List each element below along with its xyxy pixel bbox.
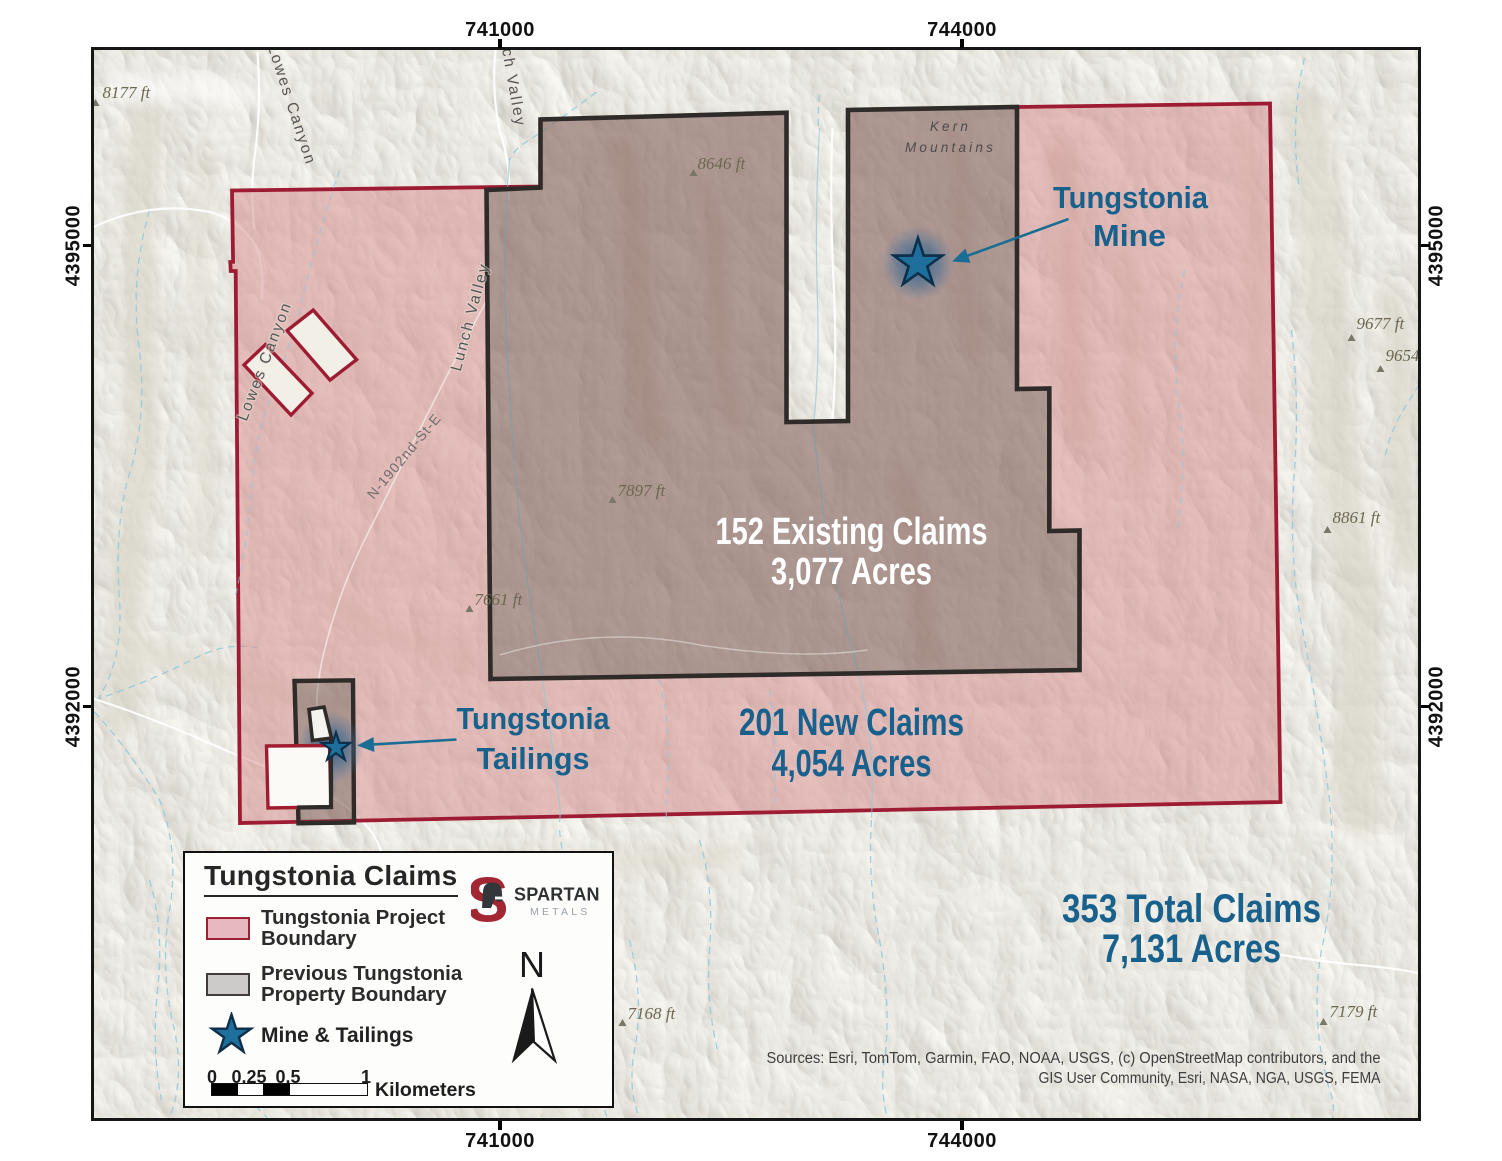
svg-text:Mine: Mine — [1093, 218, 1166, 253]
svg-text:9677 ft: 9677 ft — [1357, 314, 1406, 333]
svg-text:Tailings: Tailings — [477, 741, 590, 776]
svg-text:3,077 Acres: 3,077 Acres — [771, 551, 932, 593]
svg-text:GIS User Community, Esri, NASA: GIS User Community, Esri, NASA, NGA, USG… — [1039, 1070, 1382, 1087]
svg-text:Tungstonia: Tungstonia — [1053, 180, 1209, 215]
svg-text:Mountains: Mountains — [905, 140, 996, 155]
svg-text:7661 ft: 7661 ft — [475, 590, 524, 609]
svg-text:9654 f: 9654 f — [1386, 346, 1419, 365]
svg-text:7179 ft: 7179 ft — [1330, 1002, 1379, 1021]
svg-text:7,131 Acres: 7,131 Acres — [1102, 927, 1281, 971]
svg-text:SPARTAN: SPARTAN — [514, 885, 600, 905]
svg-text:4,054 Acres: 4,054 Acres — [772, 743, 932, 785]
svg-text:8177 ft: 8177 ft — [103, 83, 152, 102]
svg-text:201 New Claims: 201 New Claims — [739, 702, 964, 744]
svg-text:METALS: METALS — [530, 906, 590, 918]
svg-text:Tungstonia: Tungstonia — [457, 701, 611, 736]
svg-text:N: N — [519, 944, 545, 985]
svg-text:353 Total Claims: 353 Total Claims — [1062, 887, 1321, 931]
svg-text:8861 ft: 8861 ft — [1333, 508, 1382, 527]
svg-text:7168 ft: 7168 ft — [628, 1004, 677, 1023]
svg-text:Sources: Esri, TomTom, Garmin: Sources: Esri, TomTom, Garmin, FAO, NOAA… — [767, 1050, 1381, 1067]
svg-text:152 Existing Claims: 152 Existing Claims — [716, 511, 988, 553]
svg-text:8646 ft: 8646 ft — [698, 154, 747, 173]
svg-text:Kern: Kern — [930, 119, 971, 134]
svg-text:7897 ft: 7897 ft — [618, 481, 667, 500]
